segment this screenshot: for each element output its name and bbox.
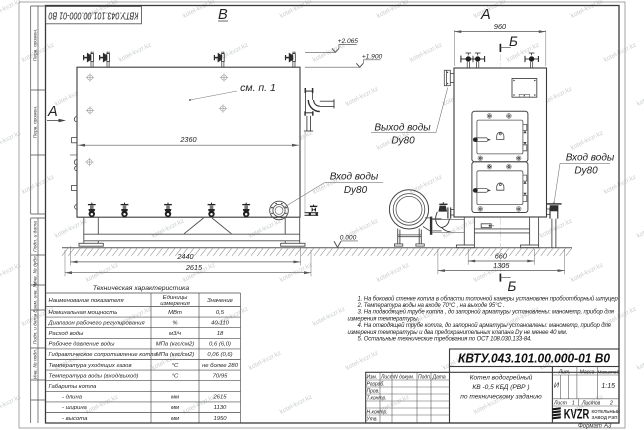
svg-text:Dу80: Dу80 — [391, 136, 415, 147]
svg-text:18: 18 — [217, 331, 224, 337]
svg-text:Т.контр.: Т.контр. — [367, 396, 387, 402]
svg-text:по техническому заданию: по техническому заданию — [460, 392, 542, 400]
svg-text:4. На отводящей трубе котла,: 4. На отводящей трубе котла, до запорной… — [358, 322, 612, 329]
svg-text:Инв. № дубл.: Инв. № дубл. — [32, 255, 38, 285]
svg-text:Формат: Формат — [578, 424, 602, 430]
svg-text:Разраб.: Разраб. — [367, 382, 385, 388]
svg-text:мм: мм — [171, 395, 179, 401]
svg-text:5. Остальные технические треб: 5. Остальные технические требования по О… — [358, 337, 532, 343]
svg-text:Котел водогрейный: Котел водогрейный — [470, 374, 533, 382]
svg-text:2: 2 — [609, 400, 613, 406]
svg-text:не более 280: не более 280 — [202, 363, 239, 369]
svg-text:2615: 2615 — [185, 263, 203, 272]
svg-text:Н.контр.: Н.контр. — [367, 410, 388, 416]
svg-text:Инв. № подл.: Инв. № подл. — [32, 349, 38, 379]
svg-text:КОТЕЛЬНЫЙ: КОТЕЛЬНЫЙ — [592, 409, 621, 414]
svg-text:2615: 2615 — [212, 395, 227, 401]
svg-text:А: А — [47, 104, 58, 120]
svg-text:Взам. инв. №: Взам. инв. № — [32, 282, 38, 312]
svg-text:40-110: 40-110 — [211, 320, 230, 326]
svg-text:Масштаб: Масштаб — [597, 369, 619, 374]
svg-text:1130: 1130 — [214, 405, 227, 411]
svg-text:Лит.: Лит. — [558, 369, 571, 375]
svg-text:КВ -0,5 КБД (РВР ): КВ -0,5 КБД (РВР ) — [472, 384, 529, 391]
svg-text:Наименование показателя: Наименование показателя — [49, 298, 125, 304]
svg-text:Пров.: Пров. — [367, 389, 380, 395]
svg-text:см. п. 1: см. п. 1 — [240, 82, 276, 94]
svg-text:0,6 (6,0): 0,6 (6,0) — [209, 342, 231, 348]
svg-text:Масса: Масса — [580, 369, 595, 375]
svg-text:2360: 2360 — [179, 135, 196, 144]
svg-text:МПа (кгс/см2): МПа (кгс/см2) — [156, 352, 195, 358]
svg-text:Габариты котла: Габариты котла — [49, 384, 97, 390]
svg-text:Гидравлическое сопротивление к: Гидравлическое сопротивление котла — [49, 352, 158, 358]
svg-text:И: И — [554, 381, 560, 390]
svg-text:1950: 1950 — [213, 416, 227, 422]
svg-text:Dу80: Dу80 — [344, 185, 368, 196]
svg-text:измерения температуры и два пр: измерения температуры и два предохраните… — [348, 330, 568, 336]
svg-text:Подп. и дата: Подп. и дата — [32, 221, 38, 252]
svg-text:2. Температура воды на входе: 2. Температура воды на входе 70°С , на в… — [357, 303, 505, 309]
svg-text:Диапазон рабочего регулировани: Диапазон рабочего регулирования — [48, 320, 146, 326]
svg-text:Рабочее давление воды: Рабочее давление воды — [49, 342, 116, 348]
svg-text:- высота: - высота — [62, 416, 88, 422]
svg-text:Листов: Листов — [581, 400, 601, 406]
svg-text:0.000: 0.000 — [340, 235, 357, 242]
svg-text:960: 960 — [494, 22, 506, 31]
svg-text:2440: 2440 — [176, 252, 193, 261]
svg-text:Вход воды: Вход воды — [330, 172, 379, 183]
svg-text:Значение: Значение — [207, 298, 234, 304]
svg-text:1. На боковой стенке котла в: 1. На боковой стенке котла в области топ… — [358, 295, 619, 302]
svg-text:Б: Б — [509, 34, 518, 49]
svg-text:0,5: 0,5 — [216, 310, 225, 316]
svg-text:Б: Б — [508, 279, 517, 294]
svg-text:Единицы: Единицы — [163, 295, 188, 301]
svg-text:Техническая характеристика: Техническая характеристика — [93, 285, 189, 292]
svg-text:Выход воды: Выход воды — [374, 123, 431, 134]
svg-text:3. На подводящей трубе котла: 3. На подводящей трубе котла , до запорн… — [358, 309, 615, 316]
svg-text:660: 660 — [495, 251, 507, 260]
svg-text:МПа (кгс/см2): МПа (кгс/см2) — [156, 342, 195, 348]
svg-text:Утв.: Утв. — [367, 417, 378, 423]
svg-text:°С: °С — [172, 363, 179, 369]
svg-text:70/95: 70/95 — [213, 373, 228, 379]
svg-text:°С: °С — [172, 373, 179, 379]
svg-text:измерения: измерения — [160, 301, 190, 307]
svg-text:Температура уходящих газов: Температура уходящих газов — [49, 363, 132, 369]
svg-text:МВт: МВт — [168, 310, 182, 316]
svg-text:+1.900: +1.900 — [362, 53, 383, 60]
svg-text:А3: А3 — [603, 424, 612, 430]
svg-text:1: 1 — [572, 400, 575, 406]
svg-text:ЗАВОД РЭП: ЗАВОД РЭП — [592, 415, 618, 420]
svg-text:измерения температуры.: измерения температуры. — [348, 316, 420, 322]
svg-text:Dу80: Dу80 — [574, 165, 598, 176]
svg-text:Изм.: Изм. — [367, 374, 378, 380]
svg-text:Расход воды: Расход воды — [49, 331, 85, 337]
svg-text:0,06 (0,6): 0,06 (0,6) — [207, 352, 232, 358]
svg-text:Температура воды (вход/выход): Температура воды (вход/выход) — [49, 373, 139, 379]
svg-text:Лист: Лист — [380, 374, 394, 380]
svg-text:КВТУ.043.101.00.000-01 В0: КВТУ.043.101.00.000-01 В0 — [48, 10, 138, 21]
svg-text:Подп.: Подп. — [418, 374, 431, 380]
svg-text:м3/ч: м3/ч — [169, 331, 181, 337]
svg-text:+2.065: +2.065 — [338, 38, 359, 45]
svg-text:N докум.: N докум. — [394, 374, 414, 380]
svg-text:1305: 1305 — [493, 261, 510, 270]
svg-text:Перв. примен.: Перв. примен. — [32, 106, 38, 139]
svg-text:Перв. примен.: Перв. примен. — [32, 29, 38, 62]
svg-text:%: % — [172, 320, 177, 326]
svg-text:А: А — [480, 7, 491, 23]
svg-text:Дата: Дата — [432, 374, 446, 380]
svg-text:1:15: 1:15 — [601, 383, 615, 390]
svg-text:- длина: - длина — [62, 395, 83, 401]
svg-text:- ширина: - ширина — [62, 405, 88, 411]
svg-text:КВТУ.043.101.00.000-01 В0: КВТУ.043.101.00.000-01 В0 — [458, 351, 610, 365]
svg-text:мм: мм — [171, 405, 179, 411]
svg-text:Лист: Лист — [553, 400, 567, 406]
svg-text:KVZR: KVZR — [564, 406, 590, 421]
svg-text:мм: мм — [171, 416, 179, 422]
svg-text:Номинальная мощность: Номинальная мощность — [49, 310, 118, 316]
svg-text:Вход воды: Вход воды — [566, 153, 615, 164]
svg-text:Подп. и дата: Подп. и дата — [32, 313, 38, 344]
